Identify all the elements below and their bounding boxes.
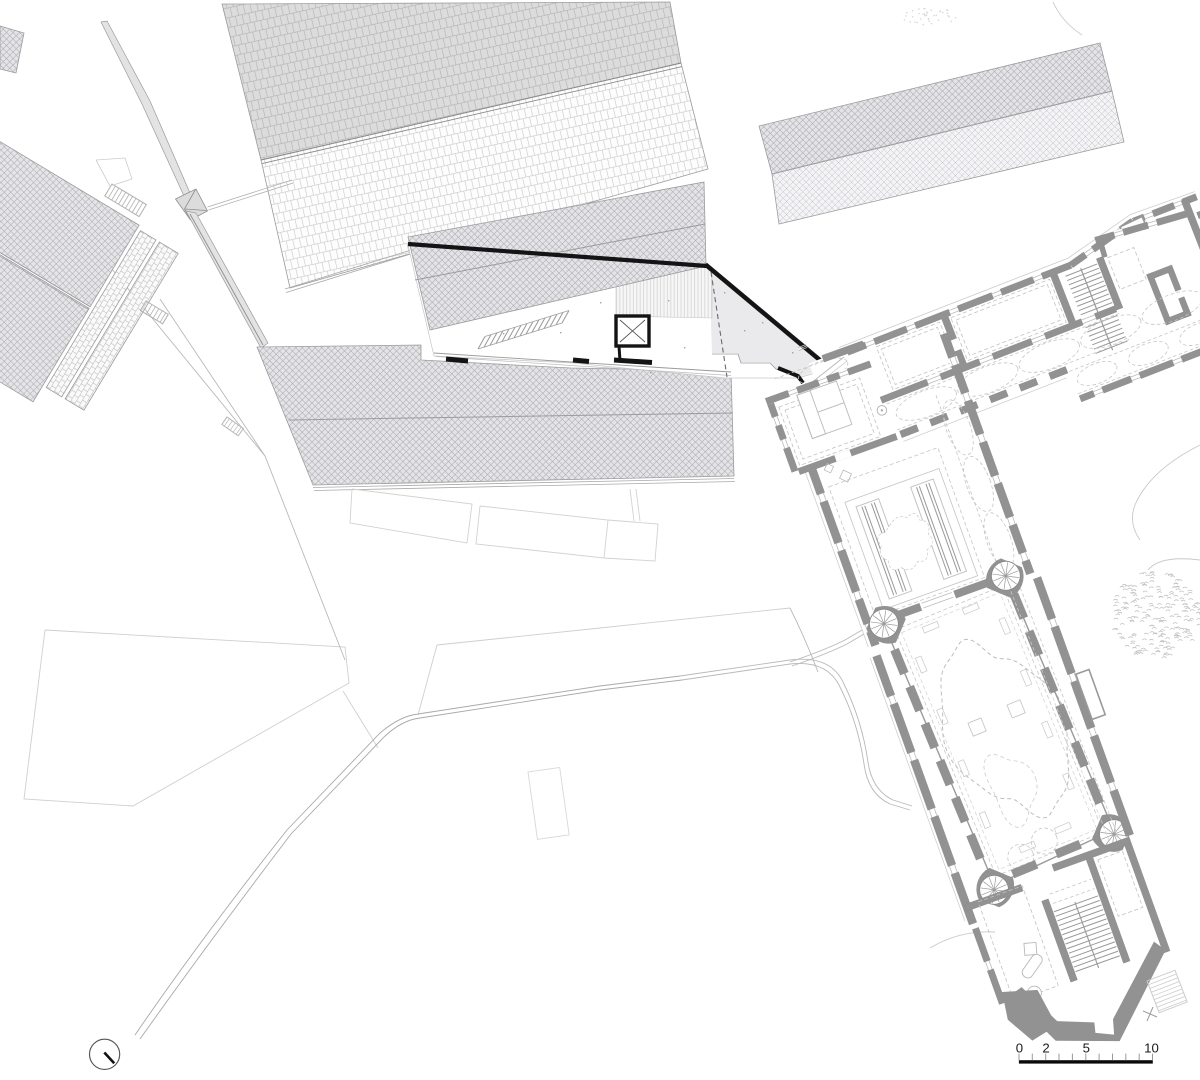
svg-text:5: 5 xyxy=(1083,1040,1090,1055)
svg-text:0: 0 xyxy=(1016,1040,1023,1055)
svg-text:2: 2 xyxy=(1042,1040,1049,1055)
svg-text:10: 10 xyxy=(1144,1040,1159,1055)
